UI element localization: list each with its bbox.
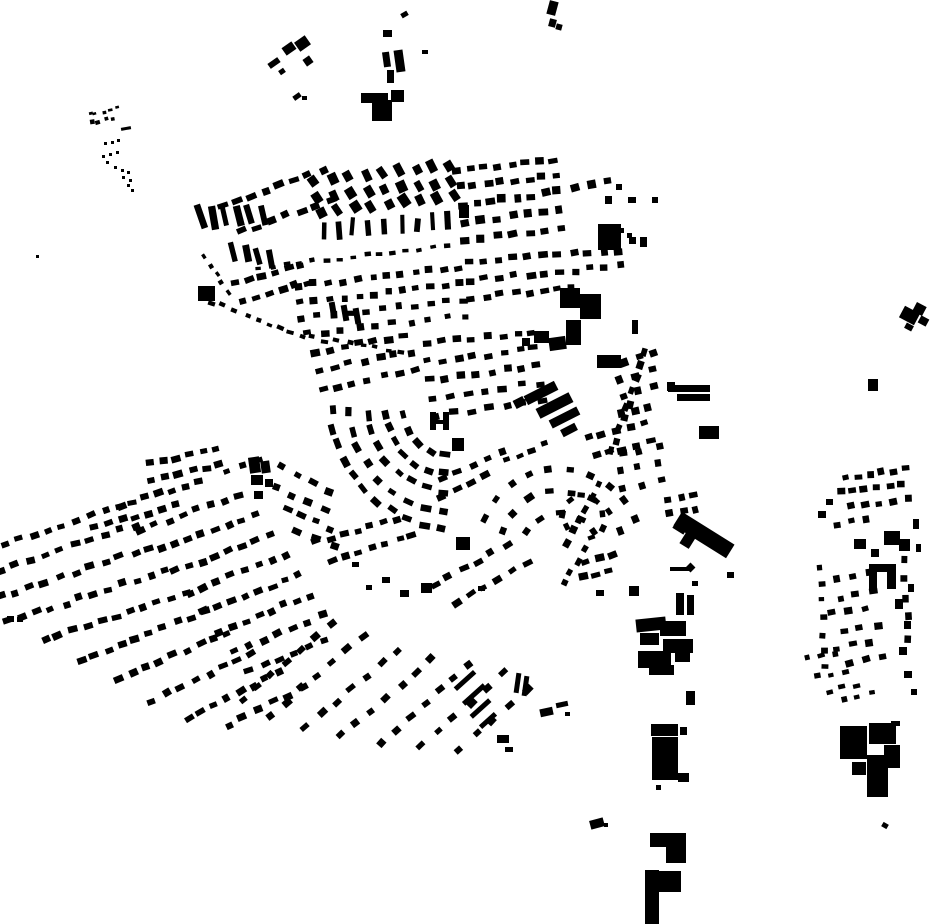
building — [332, 337, 339, 342]
building — [480, 513, 489, 523]
building — [193, 477, 203, 485]
building — [845, 659, 855, 668]
building — [517, 365, 525, 373]
building — [265, 479, 273, 487]
building — [186, 614, 196, 622]
building — [689, 491, 698, 498]
building — [497, 386, 507, 393]
building — [847, 502, 855, 510]
building — [376, 252, 383, 256]
building — [387, 70, 394, 83]
building — [379, 184, 390, 196]
building — [479, 258, 487, 264]
building — [366, 585, 372, 590]
building — [127, 171, 130, 174]
building — [382, 577, 390, 583]
building — [243, 204, 255, 225]
building — [414, 218, 421, 232]
building — [455, 354, 465, 362]
building — [166, 649, 177, 659]
building — [352, 562, 359, 567]
building — [538, 208, 548, 215]
building — [618, 485, 626, 493]
building — [523, 492, 535, 503]
building — [869, 690, 875, 695]
building — [599, 524, 607, 533]
building — [288, 176, 299, 184]
building — [167, 487, 176, 495]
building — [228, 242, 238, 263]
building — [46, 605, 55, 613]
building — [131, 549, 141, 558]
building — [867, 471, 874, 478]
building — [727, 572, 734, 578]
building — [157, 505, 167, 514]
building — [560, 288, 580, 308]
building — [614, 375, 623, 385]
building — [818, 511, 826, 518]
building — [363, 377, 371, 384]
building — [291, 527, 302, 537]
building — [465, 259, 474, 265]
building — [448, 673, 458, 682]
building — [555, 205, 563, 214]
building — [244, 275, 255, 284]
building — [117, 640, 127, 649]
building — [522, 558, 533, 567]
building — [296, 207, 308, 216]
building — [397, 350, 404, 355]
building — [852, 762, 866, 775]
building — [411, 667, 422, 678]
building — [341, 643, 353, 654]
building — [309, 279, 317, 286]
building — [206, 500, 215, 508]
building — [814, 672, 821, 678]
building — [373, 440, 384, 452]
building — [629, 237, 636, 244]
building — [656, 442, 664, 450]
building — [220, 497, 229, 506]
building — [302, 96, 307, 100]
building — [440, 266, 449, 273]
building — [507, 230, 518, 239]
building — [495, 257, 502, 264]
building — [171, 500, 180, 508]
building — [567, 490, 575, 496]
building — [586, 264, 593, 270]
building — [855, 624, 863, 631]
building — [336, 221, 343, 240]
building — [676, 593, 684, 615]
building — [320, 637, 329, 645]
building — [699, 426, 719, 439]
building — [255, 561, 263, 568]
building — [479, 274, 488, 281]
building — [89, 523, 99, 531]
building — [391, 725, 402, 735]
building — [108, 108, 113, 112]
building — [452, 335, 461, 342]
building — [327, 556, 338, 565]
building — [384, 336, 394, 344]
building — [875, 501, 882, 507]
building — [605, 482, 615, 492]
building — [344, 186, 358, 200]
building — [827, 609, 836, 616]
building — [218, 662, 229, 670]
building — [833, 575, 841, 583]
building — [240, 566, 249, 574]
building — [226, 289, 232, 296]
building — [617, 261, 624, 268]
building — [859, 485, 868, 493]
building — [905, 495, 912, 502]
building — [174, 683, 185, 692]
building — [525, 470, 534, 478]
building — [144, 510, 154, 519]
building — [603, 177, 611, 184]
building — [200, 448, 208, 454]
building — [366, 410, 372, 421]
building — [245, 649, 256, 659]
building — [565, 712, 570, 716]
building — [332, 383, 343, 392]
building — [604, 567, 613, 574]
building — [225, 722, 234, 731]
building — [83, 622, 93, 630]
building — [84, 561, 95, 570]
building — [330, 311, 337, 319]
building — [328, 424, 337, 436]
building — [212, 602, 223, 611]
building — [534, 331, 549, 343]
building — [509, 271, 517, 278]
building — [463, 390, 473, 397]
building — [117, 139, 120, 142]
building — [237, 517, 246, 524]
building — [678, 493, 685, 501]
building — [842, 669, 850, 675]
building — [92, 112, 96, 115]
building — [115, 106, 119, 109]
building — [219, 301, 226, 307]
building — [873, 484, 880, 490]
building — [629, 586, 639, 596]
building — [473, 728, 482, 737]
building — [471, 371, 480, 379]
building — [332, 698, 342, 708]
building — [370, 496, 382, 508]
building — [536, 381, 545, 388]
building — [526, 230, 535, 236]
building — [819, 581, 826, 587]
building — [358, 483, 368, 494]
building — [419, 522, 431, 530]
building — [376, 738, 386, 748]
building — [364, 200, 377, 214]
building — [400, 11, 409, 19]
building — [600, 264, 608, 271]
building — [405, 711, 416, 721]
building — [372, 344, 378, 349]
building — [692, 581, 698, 586]
building — [632, 320, 638, 334]
building — [228, 622, 238, 631]
building — [540, 228, 549, 235]
building — [881, 822, 889, 829]
building — [395, 370, 405, 378]
building — [86, 510, 96, 519]
building — [422, 50, 428, 54]
building — [467, 352, 476, 360]
building — [201, 253, 207, 259]
building — [617, 467, 624, 475]
building — [400, 215, 404, 234]
building — [325, 526, 334, 534]
building — [106, 161, 109, 164]
building — [595, 480, 602, 488]
building — [97, 616, 108, 624]
building — [109, 153, 112, 156]
building — [604, 823, 608, 827]
building — [440, 375, 449, 383]
building — [371, 274, 377, 280]
building — [485, 197, 495, 205]
building — [268, 583, 279, 591]
building — [520, 159, 529, 165]
building — [444, 313, 451, 319]
building — [260, 460, 271, 473]
building — [387, 488, 396, 496]
building — [899, 647, 907, 655]
building — [577, 492, 585, 498]
building — [545, 488, 554, 494]
building — [848, 640, 857, 647]
building — [318, 609, 328, 618]
building — [439, 468, 449, 475]
building — [302, 55, 313, 66]
building — [319, 385, 329, 392]
building — [236, 712, 247, 722]
building — [643, 403, 652, 412]
building — [183, 535, 193, 544]
building — [243, 666, 254, 674]
building — [356, 323, 364, 331]
building — [555, 269, 564, 275]
building — [426, 447, 437, 457]
building — [138, 603, 147, 612]
building — [31, 606, 42, 615]
building — [591, 571, 601, 578]
building — [656, 785, 661, 790]
building — [456, 371, 465, 379]
building — [140, 493, 150, 501]
building — [544, 465, 552, 473]
building — [633, 463, 640, 470]
building — [88, 651, 99, 660]
building — [463, 660, 473, 670]
building — [286, 330, 294, 336]
building — [555, 23, 562, 30]
building — [239, 696, 248, 705]
building — [104, 116, 109, 120]
building — [660, 621, 686, 636]
building — [840, 628, 848, 634]
building — [918, 315, 930, 326]
building — [128, 668, 139, 678]
building — [879, 653, 887, 660]
building — [267, 57, 280, 69]
building — [583, 250, 592, 257]
building — [556, 701, 569, 708]
building — [361, 168, 373, 182]
building — [117, 578, 127, 587]
building — [54, 546, 63, 554]
building — [256, 317, 262, 323]
building — [467, 337, 475, 343]
building — [111, 614, 122, 621]
building — [611, 427, 621, 435]
building — [386, 288, 392, 294]
building — [231, 196, 243, 205]
building — [601, 249, 608, 256]
building — [479, 470, 491, 480]
building — [416, 248, 422, 253]
building — [424, 266, 432, 273]
building — [261, 187, 270, 196]
building — [320, 505, 331, 514]
building — [410, 366, 420, 374]
building — [423, 357, 431, 363]
building — [172, 469, 183, 479]
building — [444, 243, 451, 248]
building — [493, 231, 502, 239]
building — [414, 193, 426, 206]
building — [493, 163, 502, 171]
building — [508, 479, 517, 488]
building — [362, 672, 371, 681]
building — [325, 347, 334, 355]
building — [581, 545, 589, 553]
building — [614, 248, 623, 256]
building — [239, 461, 247, 469]
building — [341, 551, 351, 560]
building — [889, 498, 898, 506]
building — [185, 451, 194, 458]
building — [255, 611, 265, 619]
building — [498, 447, 507, 456]
building — [327, 658, 336, 667]
building — [826, 689, 833, 695]
building — [293, 597, 302, 605]
building — [899, 539, 910, 551]
building — [144, 629, 153, 637]
building — [664, 496, 672, 503]
building — [223, 468, 231, 475]
building — [853, 683, 861, 689]
building — [194, 204, 208, 230]
building — [208, 263, 214, 269]
building — [372, 100, 392, 121]
building — [427, 301, 435, 307]
building — [581, 505, 590, 515]
building — [646, 437, 656, 444]
building — [299, 722, 309, 732]
building — [382, 52, 391, 68]
building — [308, 477, 319, 487]
building — [87, 590, 98, 599]
building — [421, 583, 432, 593]
building — [572, 269, 579, 275]
building — [101, 531, 111, 539]
building — [589, 817, 605, 829]
building — [102, 155, 105, 158]
building — [206, 670, 215, 680]
building — [129, 179, 132, 182]
building — [113, 674, 125, 684]
building — [628, 386, 635, 395]
building — [370, 292, 378, 299]
building — [594, 553, 605, 562]
building — [185, 562, 194, 569]
building — [854, 474, 862, 480]
building — [409, 460, 419, 470]
building — [596, 430, 606, 439]
building — [274, 667, 284, 676]
building — [456, 537, 470, 550]
building — [153, 657, 164, 667]
building — [838, 683, 846, 689]
building — [211, 446, 219, 453]
building — [211, 577, 221, 586]
building — [515, 331, 522, 337]
building — [266, 530, 275, 538]
building — [687, 595, 694, 615]
building — [233, 205, 245, 227]
building — [503, 402, 512, 410]
building — [379, 455, 391, 467]
building — [438, 490, 448, 497]
building — [628, 197, 636, 203]
building — [640, 419, 648, 426]
building — [869, 723, 896, 744]
building — [913, 519, 919, 529]
building — [862, 515, 870, 523]
building — [565, 568, 573, 576]
building — [626, 423, 635, 431]
building — [650, 833, 686, 847]
building — [633, 386, 641, 395]
building — [357, 294, 364, 299]
building — [505, 700, 516, 710]
building — [631, 514, 640, 524]
building — [508, 253, 517, 260]
building — [454, 670, 477, 691]
building — [499, 334, 508, 340]
building — [837, 488, 845, 495]
building — [130, 514, 140, 522]
building — [0, 567, 6, 576]
building — [400, 590, 409, 597]
building — [821, 648, 828, 654]
building — [585, 471, 595, 480]
building — [129, 635, 140, 644]
building — [421, 699, 431, 708]
building — [253, 247, 263, 265]
building — [74, 592, 83, 601]
building — [518, 399, 526, 406]
